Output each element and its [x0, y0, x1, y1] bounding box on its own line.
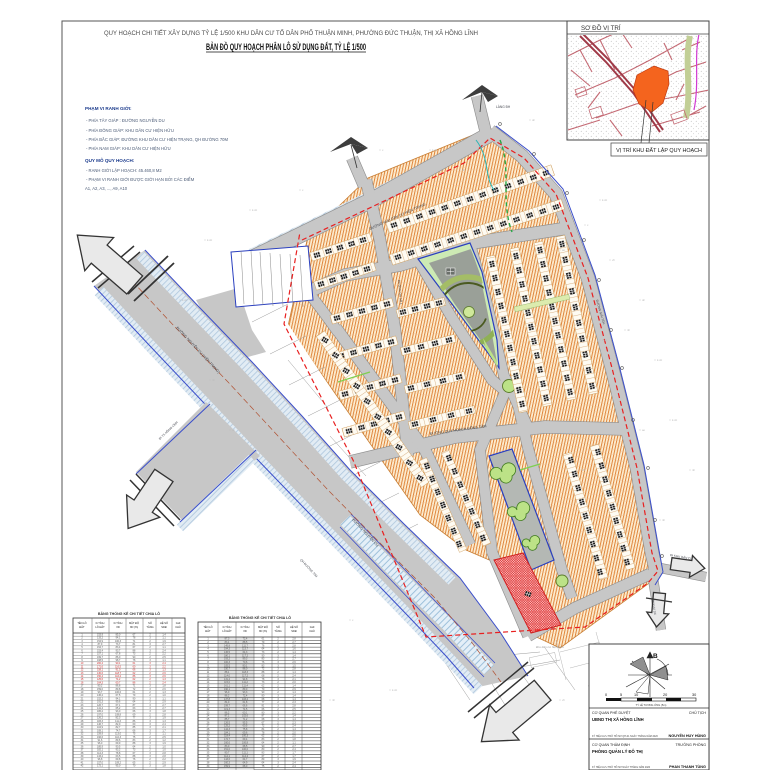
svg-text:30: 30 [692, 693, 696, 697]
svg-text:SDĐ: SDĐ [291, 629, 297, 633]
svg-text:ao: ao [642, 428, 646, 432]
svg-text:- PHẠM VI RANH GIỚI ĐƯỢC GIỚI: - PHẠM VI RANH GIỚI ĐƯỢC GIỚI HẠN BỞI CÁ… [86, 177, 195, 182]
svg-text:PHẠM VI RANH GIỚI:: PHẠM VI RANH GIỚI: [85, 104, 132, 111]
svg-text:vh: vh [570, 418, 573, 422]
svg-text:XD: XD [243, 629, 247, 633]
svg-text:k.dc: k.dc [672, 418, 678, 422]
svg-text:5: 5 [620, 693, 622, 697]
svg-text:XD: XD [116, 625, 120, 629]
svg-text:PHÒNG QUẢN LÝ ĐÔ THỊ: PHÒNG QUẢN LÝ ĐÔ THỊ [592, 749, 643, 754]
svg-text:BẢN ĐỒ QUY HOẠCH PHÂN LÔ SỬ DỤ: BẢN ĐỒ QUY HOẠCH PHÂN LÔ SỬ DỤNG ĐẤT, TỶ… [206, 41, 366, 52]
svg-text:VỊ TRÍ KHU ĐẤT LẬP QUY HOẠCH: VỊ TRÍ KHU ĐẤT LẬP QUY HOẠCH [616, 147, 702, 154]
svg-text:KÝ HIỆU LƯU TRỮ HỒ SƠ QH-01: KÝ HIỆU LƯU TRỮ HỒ SƠ QH-01 NGÀY THÁNG N… [592, 735, 658, 738]
svg-text:- PHÍA BẮC GIÁP: ĐƯỜNG KHU DÂN: - PHÍA BẮC GIÁP: ĐƯỜNG KHU DÂN CƯ HIỆN T… [86, 137, 228, 142]
svg-text:NGUYỄN HUY HÙNG: NGUYỄN HUY HÙNG [669, 733, 707, 738]
svg-text:vh: vh [612, 258, 615, 262]
svg-text:CƠ QUAN THẨM ĐỊNH: CƠ QUAN THẨM ĐỊNH [592, 742, 630, 747]
svg-text:UBND THỊ XÃ HỒNG LĨNH: UBND THỊ XÃ HỒNG LĨNH [592, 717, 644, 722]
svg-text:vh: vh [582, 468, 585, 472]
svg-text:QUY MÔ QUY HOẠCH:: QUY MÔ QUY HOẠCH: [85, 156, 135, 163]
svg-text:CƠ QUAN PHÊ DUYỆT: CƠ QUAN PHÊ DUYỆT [592, 710, 631, 715]
svg-text:PHAN THANH TÙNG: PHAN THANH TÙNG [669, 764, 706, 769]
svg-text:B: B [653, 653, 658, 660]
svg-text:TẦNG: TẦNG [274, 629, 281, 633]
svg-text:D.TÍCH: D.TÍCH [241, 625, 250, 629]
svg-text:k.dc: k.dc [602, 338, 608, 342]
svg-text:A1, A2, A3, ..., A9, A10: A1, A2, A3, ..., A9, A10 [85, 186, 128, 191]
svg-text:k.dc: k.dc [602, 198, 608, 202]
svg-text:vh: vh [562, 698, 565, 702]
svg-text:k.dc: k.dc [392, 688, 398, 692]
svg-text:95,0: 95,0 [116, 765, 121, 768]
svg-text:D.TÍCH: D.TÍCH [114, 621, 123, 625]
svg-text:68,0: 68,0 [243, 765, 248, 768]
svg-text:XD (%): XD (%) [259, 629, 267, 633]
svg-text:- RANH GIỚI LẬP HOẠCH: 45.460,: - RANH GIỚI LẬP HOẠCH: 45.460,8 M2 [86, 168, 162, 173]
svg-text:nh: nh [332, 698, 336, 702]
svg-text:k.dc: k.dc [657, 358, 663, 362]
svg-text:nh: nh [212, 378, 216, 382]
svg-text:ao: ao [562, 248, 566, 252]
svg-text:159,9: 159,9 [224, 765, 231, 768]
svg-text:GHI: GHI [310, 625, 315, 629]
svg-text:0: 0 [605, 693, 607, 697]
svg-text:- PHÍA ĐÔNG GIÁP: KHU DÂN CƯ H: - PHÍA ĐÔNG GIÁP: KHU DÂN CƯ HIỆN HỮU [86, 128, 174, 133]
svg-text:20: 20 [663, 693, 667, 697]
svg-text:KÝ HIỆU LƯU TRỮ HỒ SƠ NGÀY: KÝ HIỆU LƯU TRỮ HỒ SƠ NGÀY THÁNG NĂM 202… [592, 766, 651, 769]
svg-text:nh: nh [627, 328, 631, 332]
svg-text:nh: nh [692, 468, 696, 472]
svg-text:TRƯỞNG PHÒNG: TRƯỞNG PHÒNG [675, 742, 706, 747]
svg-text:XD (%): XD (%) [130, 625, 138, 629]
svg-text:k.dc: k.dc [252, 208, 258, 212]
svg-text:10: 10 [634, 693, 638, 697]
svg-text:k.dc: k.dc [432, 148, 438, 152]
svg-text:k.dc: k.dc [182, 298, 188, 302]
svg-text:- PHÍA NAM GIÁP: KHU DÂN CƯ HI: - PHÍA NAM GIÁP: KHU DÂN CƯ HIỆN HỮU [86, 146, 171, 151]
svg-text:SƠ ĐỒ VỊ TRÍ: SƠ ĐỒ VỊ TRÍ [581, 25, 621, 32]
svg-text:BẢNG THỐNG KÊ CHI TIẾT CHIA LÔ: BẢNG THỐNG KÊ CHI TIẾT CHIA LÔ [229, 615, 291, 620]
svg-text:SDĐ: SDĐ [161, 625, 167, 629]
svg-text:TẦNG: TẦNG [146, 625, 153, 629]
svg-text:172,1: 172,1 [97, 765, 104, 768]
svg-text:D.TÍCH: D.TÍCH [223, 625, 232, 629]
svg-text:BẢNG THỐNG KÊ CHI TIẾT CHIA LÔ: BẢNG THỐNG KÊ CHI TIẾT CHIA LÔ [98, 611, 160, 616]
svg-text:LÀNG ĐH: LÀNG ĐH [496, 105, 511, 109]
svg-text:khu dân cư hiện hữu: khu dân cư hiện hữu [536, 645, 564, 649]
svg-text:- PHÍA TÂY GIÁP : ĐƯỜNG NGUYỄN: - PHÍA TÂY GIÁP : ĐƯỜNG NGUYỄN DU [86, 118, 165, 123]
svg-text:D.TÍCH: D.TÍCH [96, 621, 105, 625]
svg-text:GHI: GHI [176, 621, 181, 625]
svg-text:k.dc: k.dc [207, 238, 213, 242]
svg-text:CHỦ TỊCH: CHỦ TỊCH [689, 710, 707, 715]
svg-text:nh: nh [662, 518, 666, 522]
svg-text:nh: nh [462, 168, 466, 172]
